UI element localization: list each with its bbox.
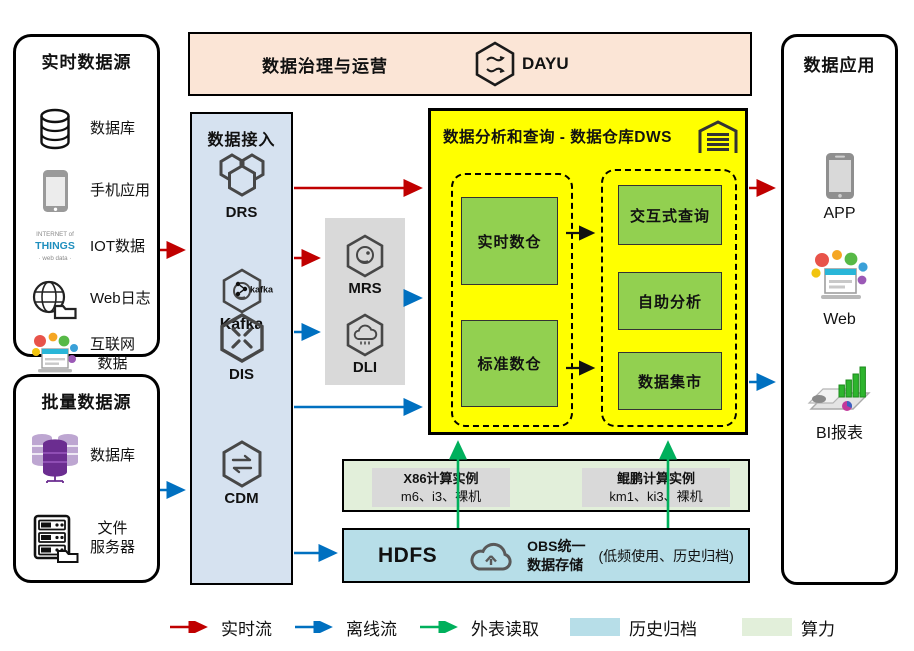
ingestion-column: 数据接入 DRS kafka Kaf: [190, 112, 293, 585]
dws-cell-standard: 标准数仓: [461, 320, 558, 407]
list-item: DRS: [192, 152, 291, 221]
obs-cloud-icon: [468, 538, 514, 574]
dws-box: 数据分析和查询 - 数据仓库DWS 实时数仓 标准数仓 交互式查询 自助分析 数…: [428, 108, 748, 435]
applications-box: 数据应用 APP W: [781, 34, 898, 585]
legend-item: 历史归档: [570, 615, 697, 640]
app-label: Web: [823, 311, 856, 329]
iot-wordcloud-icon: INTERNET of THINGS · web data ·: [28, 226, 82, 268]
file-server-icon: [28, 514, 82, 564]
service-label: DIS: [229, 366, 254, 383]
cdm-icon: [220, 440, 264, 488]
list-item: 文件 服务器: [16, 505, 157, 573]
external-read-arrow-icon: [418, 621, 462, 633]
dayu-group: DAYU: [474, 41, 569, 87]
service-label: CDM: [224, 490, 258, 507]
database-icon: [28, 107, 82, 151]
web-log-icon: [28, 278, 82, 320]
legend-label: 离线流: [346, 615, 397, 640]
legend-label: 历史归档: [629, 615, 697, 640]
dli-icon: [344, 313, 386, 357]
processing-box: MRS DLI: [325, 218, 405, 385]
list-item: MRS: [344, 234, 386, 297]
instance-title: 鲲鹏计算实例: [617, 470, 695, 488]
legend-item: 实时流: [168, 615, 272, 640]
ingestion-title: 数据接入: [192, 126, 291, 150]
list-item: Web: [784, 249, 895, 329]
source-label: IOT数据: [90, 238, 145, 256]
compute-swatch: [742, 618, 792, 636]
instance-detail: m6、i3、裸机: [401, 488, 481, 506]
dayu-label: DAYU: [522, 54, 569, 74]
archive-swatch: [570, 618, 620, 636]
list-item: 数据库: [16, 413, 157, 499]
source-label: 互联网 数据: [90, 336, 135, 374]
service-label: DLI: [353, 359, 377, 376]
compute-bar: X86计算实例 m6、i3、裸机 鲲鹏计算实例 km1、ki3、裸机: [342, 459, 750, 512]
bi-report-icon: [807, 359, 873, 415]
legend-label: 算力: [801, 615, 835, 640]
offline-flow-arrow-icon: [293, 621, 337, 633]
obs-label: OBS统一 数据存储: [527, 537, 585, 573]
legend-item: 离线流: [293, 615, 397, 640]
svg-text:INTERNET of: INTERNET of: [36, 231, 74, 238]
service-label: DRS: [226, 204, 258, 221]
dws-cell-self-analysis: 自助分析: [618, 272, 722, 330]
app-label: BI报表: [816, 419, 863, 443]
governance-title: 数据治理与运营: [262, 52, 388, 77]
dws-cell-interactive-query: 交互式查询: [618, 185, 722, 245]
source-label: 数据库: [90, 447, 135, 465]
legend-label: 外表读取: [471, 615, 539, 640]
svg-text:THINGS: THINGS: [35, 240, 75, 252]
list-item: 数据库: [16, 103, 157, 155]
list-item: INTERNET of THINGS · web data · IOT数据: [16, 223, 157, 271]
source-label: Web日志: [90, 290, 151, 308]
list-item: APP: [784, 151, 895, 223]
diagram-canvas: 数据治理与运营 DAYU 实时数据源 数据库: [0, 0, 914, 651]
x86-instance-box: X86计算实例 m6、i3、裸机: [372, 468, 510, 507]
dis-icon: [218, 312, 266, 364]
list-item: 手机应用: [16, 165, 157, 217]
mrs-icon: [344, 234, 386, 278]
dws-service-group: 交互式查询 自助分析 数据集市: [601, 169, 737, 427]
svg-text:kafka: kafka: [250, 285, 274, 295]
legend-item: 算力: [742, 615, 835, 640]
web-collage-icon: [809, 249, 871, 307]
instance-detail: km1、ki3、裸机: [609, 488, 702, 506]
governance-bar: 数据治理与运营 DAYU: [188, 32, 752, 96]
realtime-sources-box: 实时数据源 数据库 手机应用: [13, 34, 160, 357]
applications-title: 数据应用: [784, 51, 895, 76]
source-label: 文件 服务器: [90, 520, 135, 558]
svg-text:· web data ·: · web data ·: [39, 255, 72, 262]
realtime-sources-title: 实时数据源: [16, 48, 157, 73]
instance-title: X86计算实例: [403, 470, 478, 488]
warehouse-icon: [697, 119, 739, 155]
legend: 实时流 离线流 外表读取 历史归档 算力: [168, 612, 835, 642]
hdfs-label: HDFS: [378, 544, 437, 568]
dws-title: 数据分析和查询 - 数据仓库DWS: [443, 119, 672, 147]
internet-data-icon: [28, 332, 82, 378]
list-item: DLI: [344, 313, 386, 376]
kunpeng-instance-box: 鲲鹏计算实例 km1、ki3、裸机: [582, 468, 730, 507]
service-label: MRS: [348, 280, 381, 297]
obs-note: (低频使用、历史归档): [599, 546, 734, 566]
batch-sources-box: 批量数据源 数据库: [13, 374, 160, 583]
legend-item: 外表读取: [418, 615, 539, 640]
kafka-logo-badge: kafka: [234, 280, 280, 298]
purple-database-icon: [28, 428, 82, 484]
legend-label: 实时流: [221, 615, 272, 640]
list-item: DIS: [192, 312, 291, 383]
storage-bar: HDFS OBS统一 数据存储 (低频使用、历史归档): [342, 528, 750, 583]
realtime-flow-arrow-icon: [168, 621, 212, 633]
mobile-phone-icon: [28, 168, 82, 214]
dws-cell-data-mart: 数据集市: [618, 352, 722, 410]
dws-warehouse-group: 实时数仓 标准数仓: [451, 173, 573, 427]
list-item: BI报表: [784, 359, 895, 443]
app-label: APP: [823, 205, 855, 223]
dayu-icon: [474, 41, 516, 87]
drs-icon: [217, 152, 267, 202]
batch-sources-title: 批量数据源: [16, 388, 157, 413]
list-item: CDM: [192, 440, 291, 507]
list-item: Web日志: [16, 275, 157, 323]
app-phone-icon: [824, 151, 856, 201]
source-label: 手机应用: [90, 182, 150, 200]
dws-cell-realtime: 实时数仓: [461, 197, 558, 285]
source-label: 数据库: [90, 120, 135, 138]
